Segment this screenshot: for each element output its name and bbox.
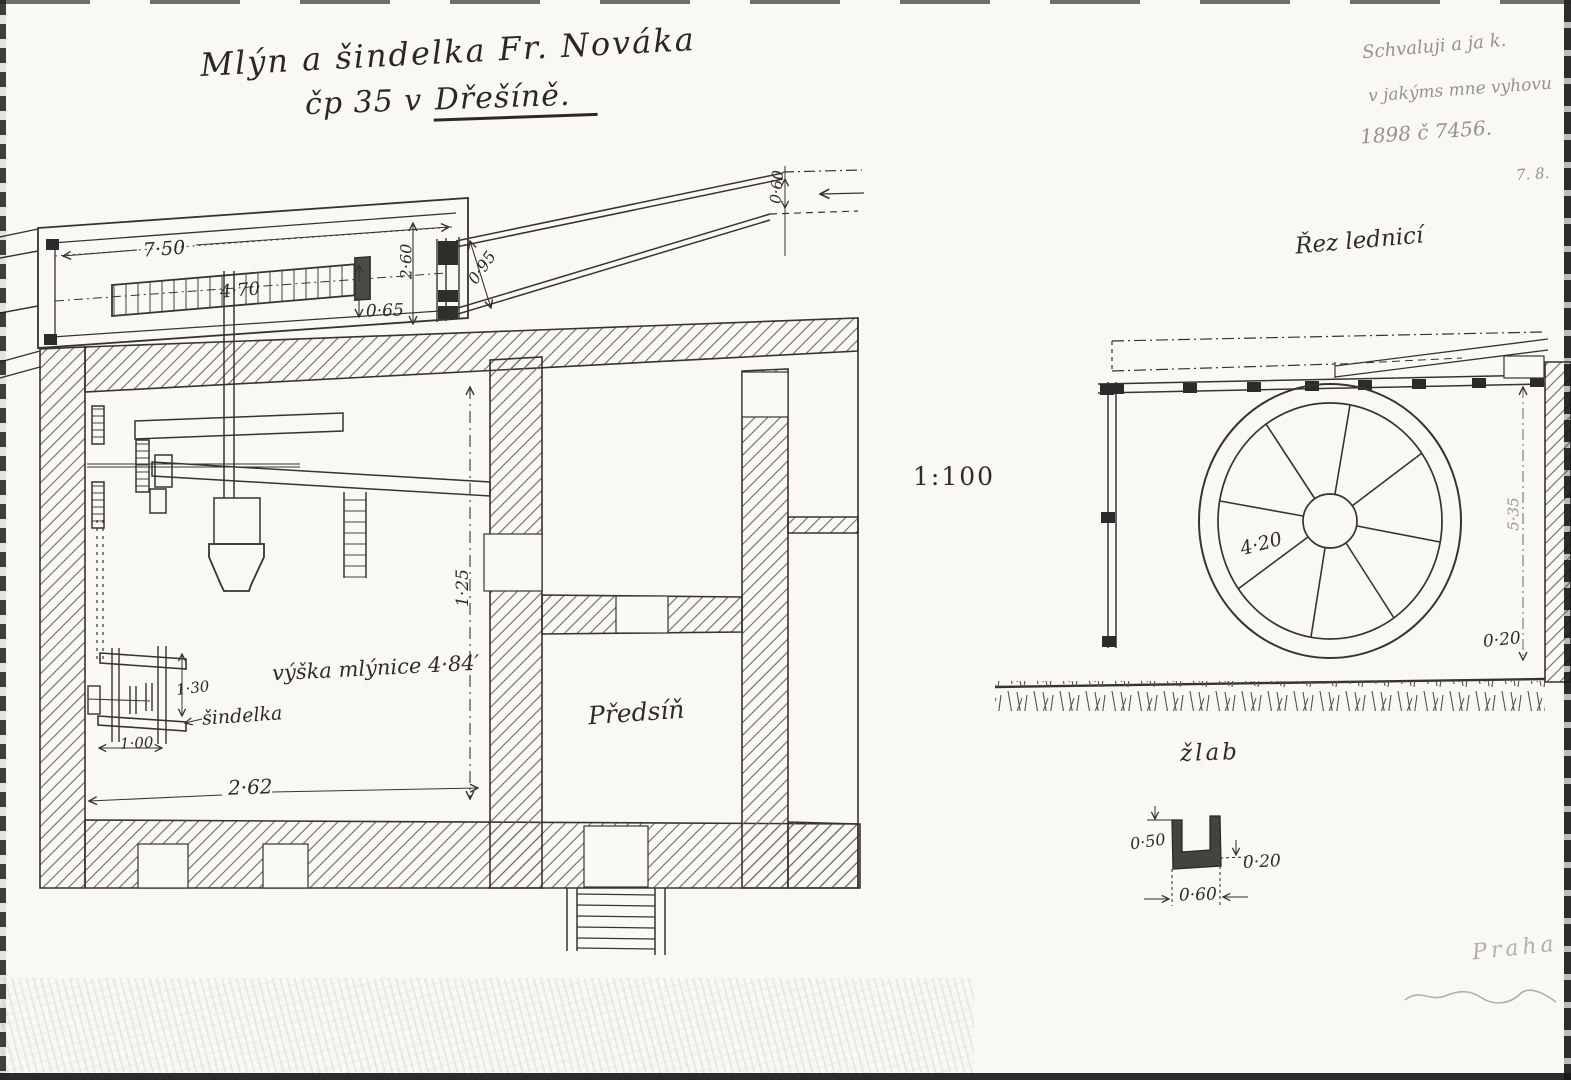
dim-flume-length: 7·50 [142, 237, 186, 262]
dim-machine-width: 1·00 [120, 733, 154, 753]
chute [448, 166, 864, 317]
dim-trough-wall: 0·20 [1243, 851, 1282, 873]
subtitle-place: Dřešíně. [432, 77, 597, 122]
subtitle-prefix: čp 35 v [304, 83, 422, 122]
mill-building-walls [40, 318, 860, 888]
dim-wall-height: 5·35 [1505, 497, 1523, 530]
dim-trough-width: 0·60 [1179, 884, 1218, 905]
water-wheel [1199, 384, 1461, 658]
dim-story-height: 1·25 [453, 569, 473, 607]
dim-wall-offset: 0·20 [1482, 628, 1522, 652]
dim-channel-depth: 0·65 [366, 300, 405, 321]
trough-title: žlab [1180, 739, 1241, 767]
dim-channel-length: 4·70 [219, 278, 261, 302]
scan-noise [0, 978, 974, 1073]
wheel-chamber-structure [995, 332, 1571, 711]
dim-room-width: 2·62 [228, 774, 273, 800]
scanned-mill-drawing: Mlýn a šindelka Fr. Nováka čp 35 v Dřeší… [0, 0, 1571, 1080]
scale-label: 1:100 [913, 462, 995, 491]
shingle-machine [88, 646, 186, 744]
drawing-linework [0, 0, 1571, 1080]
dim-flume-height: 2·60 [396, 244, 415, 280]
dim-chute: 0·60 [766, 170, 787, 205]
approval-note-line4: 7. 8. [1515, 164, 1550, 184]
mill-machinery [87, 271, 490, 660]
cellar-stairs [567, 888, 665, 955]
signature-scribble [1405, 990, 1556, 1003]
